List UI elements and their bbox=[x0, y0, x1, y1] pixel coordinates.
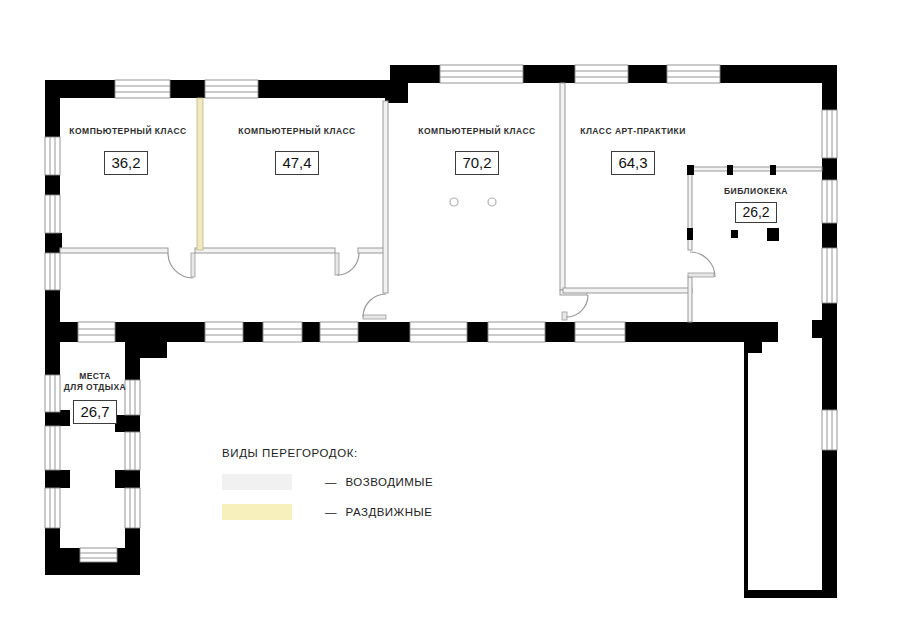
room-area-art-class: 64,3 bbox=[611, 151, 655, 175]
floor-plan-drawing bbox=[0, 0, 900, 635]
room-label-rest-area: МЕСТА ДЛЯ ОТДЫХА bbox=[64, 371, 126, 393]
partition-legend: ВИДЫ ПЕРЕГОРОДОК: — ВОЗВОДИМЫЕ — РАЗДВИЖ… bbox=[222, 447, 358, 459]
room-label-art-class: КЛАСС АРТ-ПРАКТИКИ bbox=[580, 126, 686, 136]
erected-partitions bbox=[60, 83, 822, 322]
erected-partition-swatch bbox=[222, 474, 292, 490]
room-label-rest-area-line1: МЕСТА bbox=[79, 371, 110, 381]
room-label-computer-class-2: КОМПЬЮТЕРНЫЙ КЛАСС bbox=[238, 126, 355, 136]
sliding-partition-swatch bbox=[222, 504, 292, 520]
room-area-computer-class-1: 36,2 bbox=[104, 151, 148, 175]
room-label-rest-area-line2: ДЛЯ ОТДЫХА bbox=[64, 382, 126, 392]
room-area-computer-class-2: 47,4 bbox=[275, 151, 319, 175]
legend-dash: — bbox=[325, 476, 337, 488]
room-area-rest-area: 26,7 bbox=[73, 400, 117, 424]
windows bbox=[45, 65, 837, 562]
doors bbox=[168, 252, 715, 320]
legend-item-sliding: — РАЗДВИЖНЫЕ bbox=[222, 504, 432, 520]
column-marker bbox=[488, 198, 496, 206]
room-label-computer-class-1: КОМПЬЮТЕРНЫЙ КЛАСС bbox=[69, 126, 186, 136]
room-area-computer-class-3: 70,2 bbox=[455, 151, 499, 175]
floor-plan-page: КОМПЬЮТЕРНЫЙ КЛАСС 36,2 КОМПЬЮТЕРНЫЙ КЛА… bbox=[0, 0, 900, 635]
room-label-computer-class-3: КОМПЬЮТЕРНЫЙ КЛАСС bbox=[418, 126, 535, 136]
legend-item-erected: — ВОЗВОДИМЫЕ bbox=[222, 474, 433, 490]
sliding-partition bbox=[197, 98, 203, 250]
legend-title: ВИДЫ ПЕРЕГОРОДОК: bbox=[222, 447, 358, 459]
room-area-library: 26,2 bbox=[735, 202, 777, 223]
room-label-library: БИБЛИОКЕКА bbox=[724, 186, 788, 196]
legend-dash: — bbox=[325, 506, 337, 518]
column-marker bbox=[450, 198, 458, 206]
legend-label-erected: ВОЗВОДИМЫЕ bbox=[346, 476, 434, 488]
legend-label-sliding: РАЗДВИЖНЫЕ bbox=[346, 506, 433, 518]
columns-and-fixtures bbox=[450, 165, 779, 241]
